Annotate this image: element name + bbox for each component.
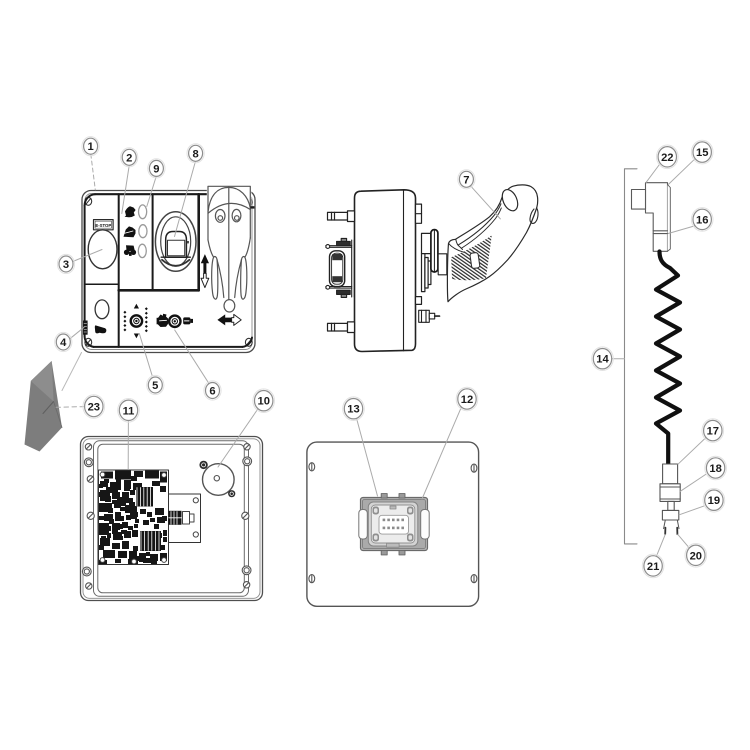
svg-text:20: 20: [690, 550, 702, 562]
svg-text:2: 2: [126, 152, 132, 164]
svg-text:7: 7: [463, 174, 469, 186]
svg-text:14: 14: [596, 354, 609, 366]
svg-text:11: 11: [123, 405, 135, 417]
svg-text:22: 22: [661, 152, 673, 164]
svg-text:4: 4: [60, 337, 67, 349]
svg-text:16: 16: [696, 214, 708, 226]
svg-text:E-STOP: E-STOP: [95, 223, 111, 228]
svg-text:3: 3: [63, 259, 69, 271]
svg-text:12: 12: [461, 394, 473, 406]
svg-text:13: 13: [347, 404, 359, 416]
svg-text:1: 1: [87, 141, 93, 153]
svg-text:17: 17: [707, 426, 719, 438]
svg-text:15: 15: [696, 147, 708, 159]
svg-text:6: 6: [209, 386, 215, 398]
svg-text:5: 5: [152, 380, 158, 392]
svg-text:18: 18: [709, 463, 721, 475]
svg-text:23: 23: [88, 402, 100, 414]
svg-text:10: 10: [257, 396, 269, 408]
svg-text:21: 21: [647, 561, 659, 573]
svg-text:9: 9: [153, 163, 159, 175]
svg-text:19: 19: [708, 495, 720, 507]
svg-text:8: 8: [192, 148, 198, 160]
